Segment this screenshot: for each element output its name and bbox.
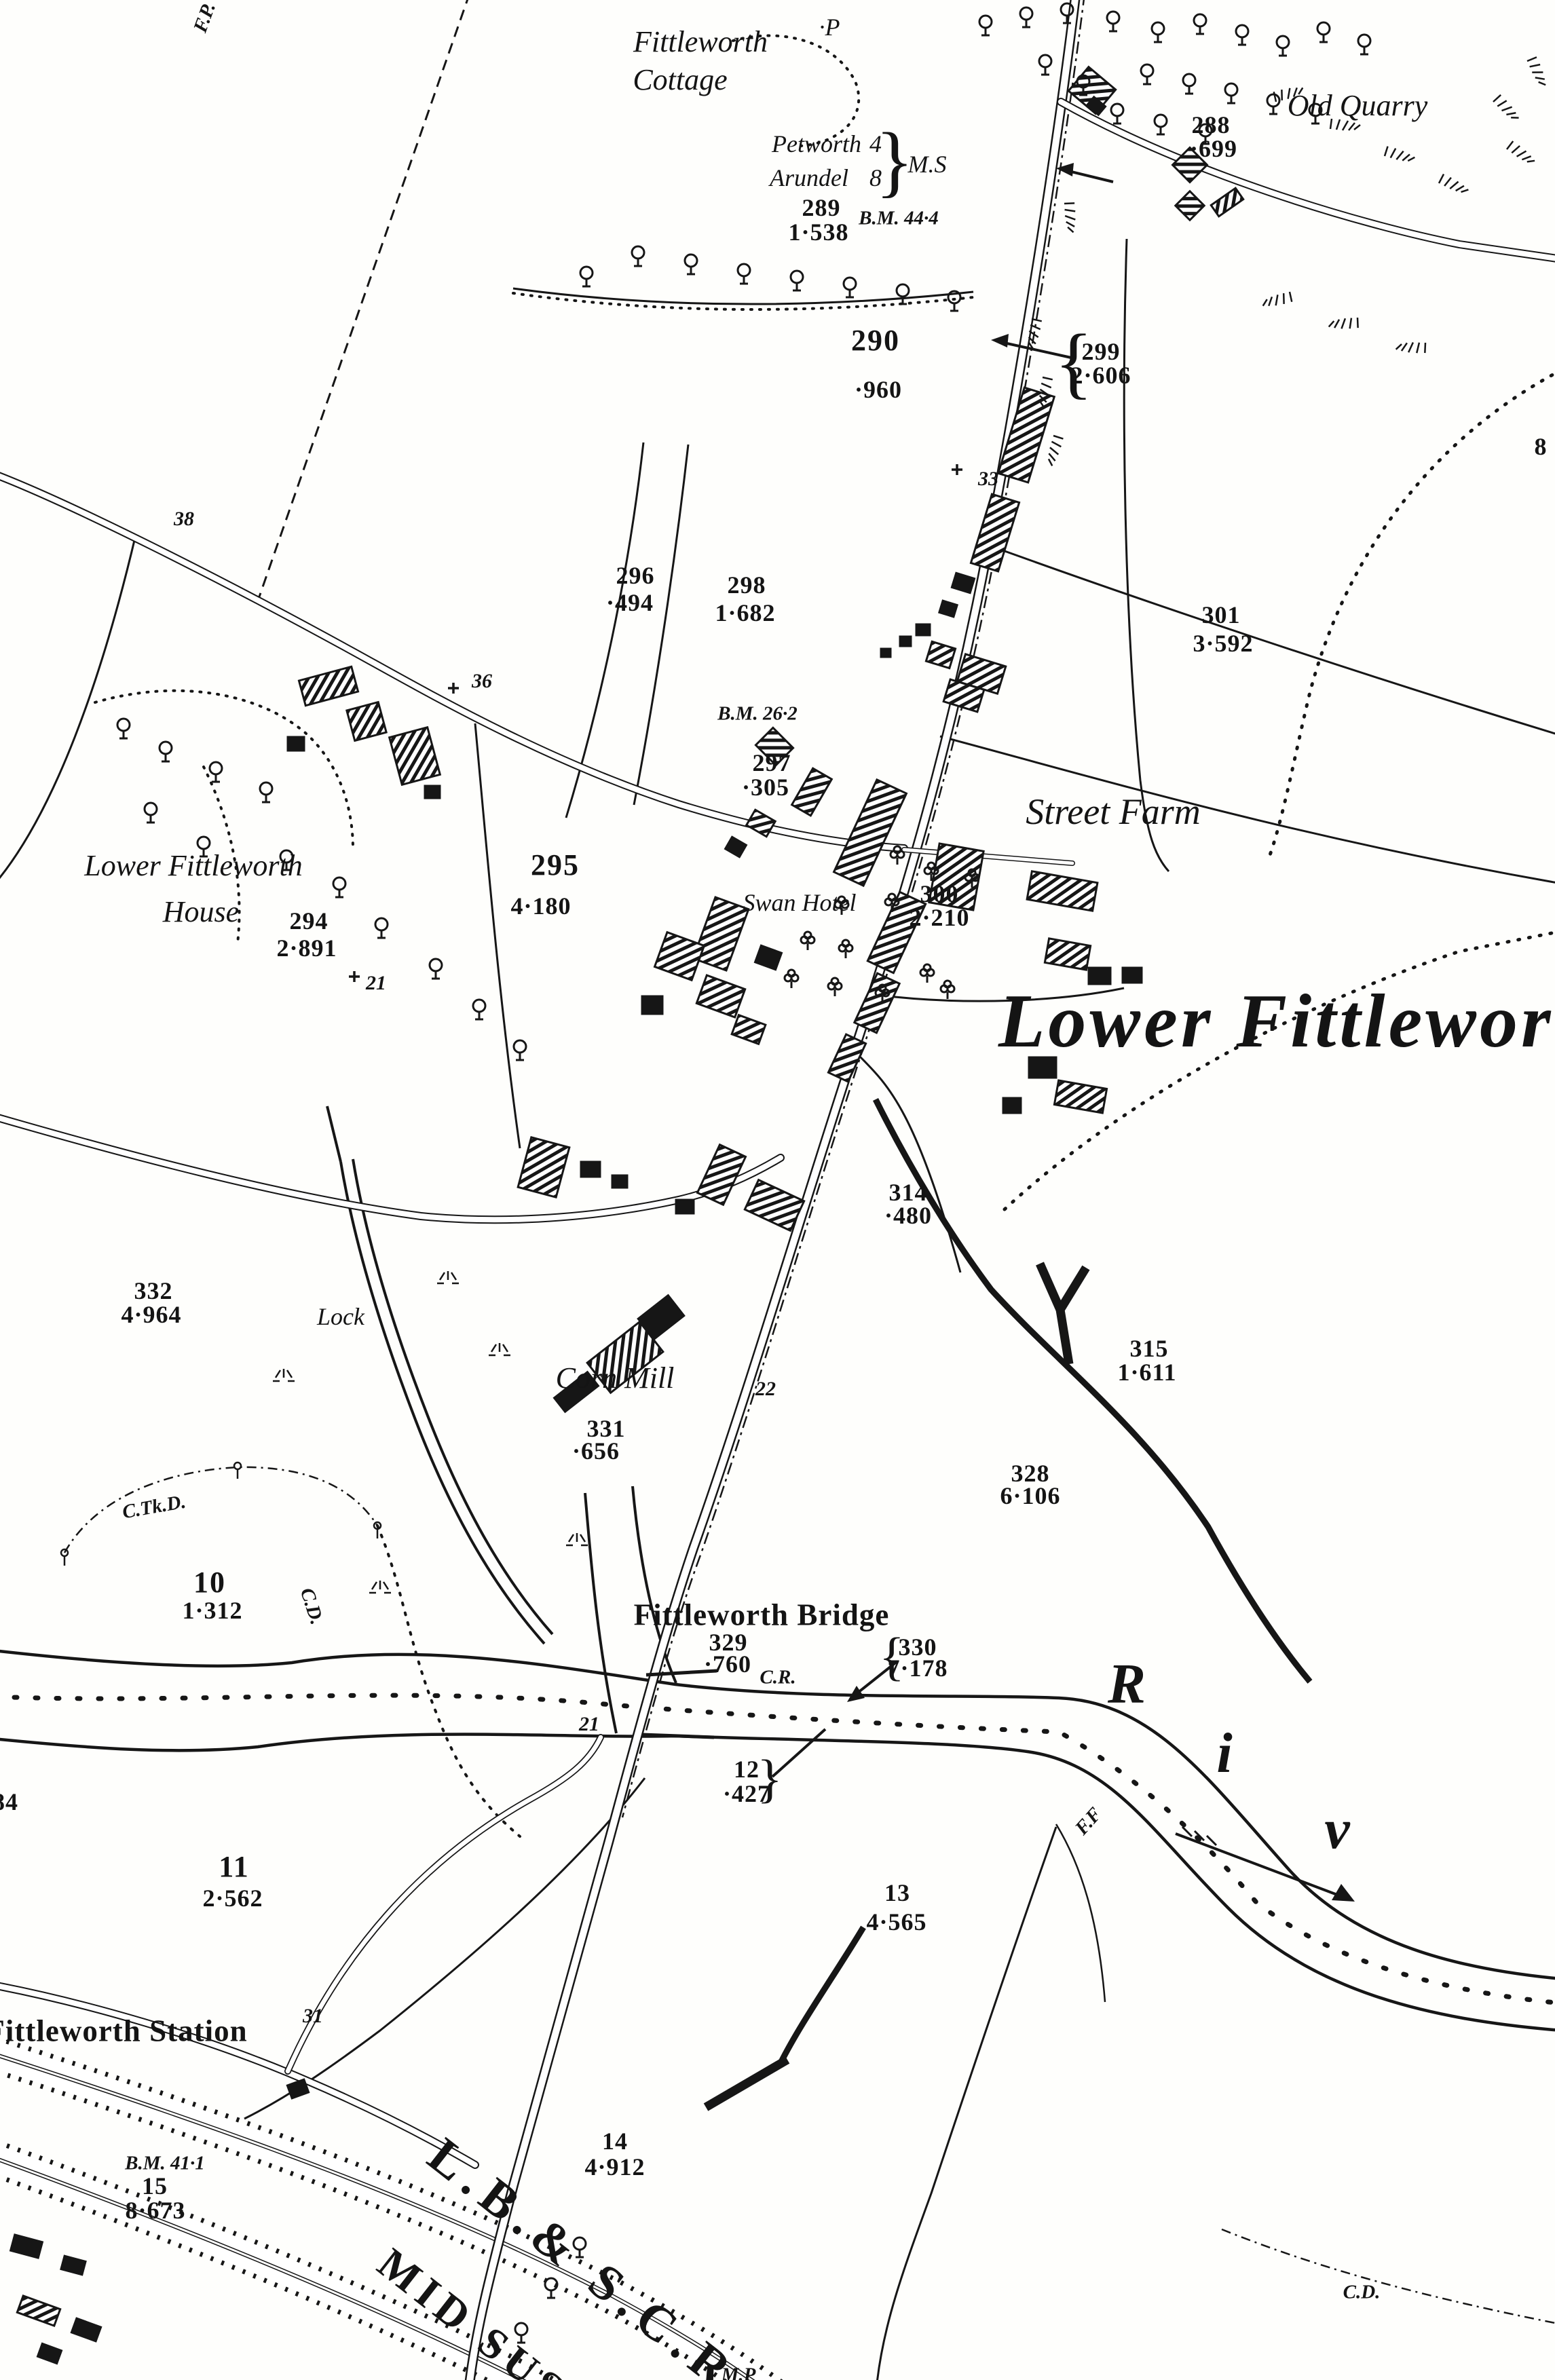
map-canvas: F.P.FittleworthCottage·PPetworth4Arundel… xyxy=(0,0,1555,2380)
survey-marks xyxy=(61,163,1113,1777)
river-rother xyxy=(0,1099,1555,2107)
marsh-symbols xyxy=(273,1271,588,1593)
railway-lbscr xyxy=(0,2050,801,2380)
map-linework xyxy=(0,0,1555,2380)
parish-boundaries xyxy=(64,0,1555,2324)
hachures xyxy=(1028,56,1551,467)
buildings xyxy=(11,67,1243,2364)
